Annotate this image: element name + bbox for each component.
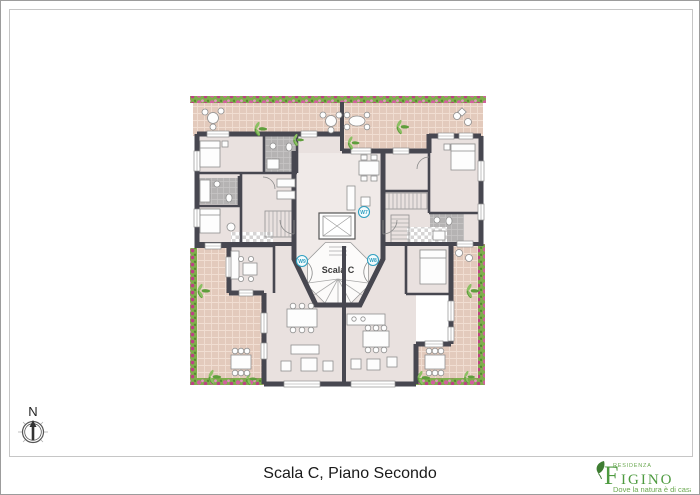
bed xyxy=(420,250,446,284)
unit-badge-label: W8 xyxy=(369,258,377,264)
compass-icon: N xyxy=(18,404,48,443)
unit-badge-label: W9 xyxy=(298,259,306,265)
elevator xyxy=(319,213,355,239)
stairwell-label: Scala C xyxy=(322,265,355,275)
unit-badge-top: W7 xyxy=(359,207,370,218)
caption-bar: Scala C, Piano Secondo RESIDENZA F IGINO… xyxy=(1,457,699,495)
unit-badge-right: W8 xyxy=(368,255,379,266)
flower-border-top xyxy=(190,96,486,103)
terrace-dining-set xyxy=(231,348,251,376)
unit-badge-left: W9 xyxy=(297,256,308,267)
floor-plan: Scala C xyxy=(1,1,700,457)
flower-border-right xyxy=(478,244,485,385)
logo-tagline: Dove la natura è di casa xyxy=(613,485,691,494)
logo-residenza-text: RESIDENZA xyxy=(613,463,652,469)
page: Scala C xyxy=(0,0,700,495)
residenza-figino-logo: RESIDENZA F IGINO Dove la natura è di ca… xyxy=(591,459,691,494)
flower-border-left xyxy=(190,248,197,384)
compass-north-label: N xyxy=(28,404,37,419)
unit-badge-label: W7 xyxy=(360,210,368,216)
leaf-stem xyxy=(599,474,602,480)
